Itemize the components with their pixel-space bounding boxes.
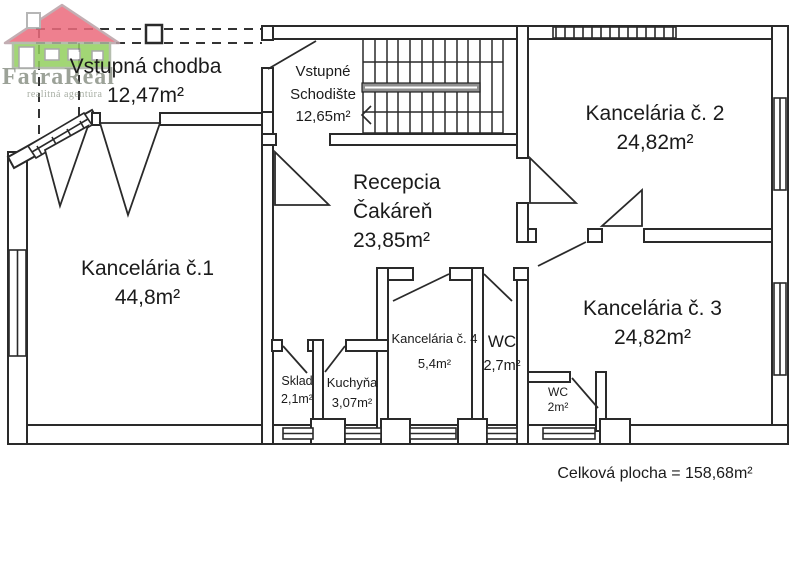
room-label-kancelaria-3: Kancelária č. 3 24,82m²: [540, 295, 765, 353]
room-label-vstupne-schodiste: Vstupné Schodište 12,65m²: [278, 61, 368, 129]
room-name: Kancelária č.1: [40, 255, 255, 284]
kancelaria2-south-door-swing: [602, 190, 642, 226]
room-name: WC: [478, 330, 526, 353]
room-label-kuchyna: Kuchyňa 3,07m²: [323, 373, 381, 413]
room-label-wc-upper: WC 2,7m²: [478, 330, 526, 376]
room-name: Kancelária č. 2: [540, 100, 770, 129]
room-area: 12,47m²: [28, 82, 263, 111]
room-label-wc-lower: WC 2m²: [540, 385, 576, 415]
kuchyna-door-leaf: [325, 346, 345, 372]
total-area-label: Celková plocha = 158,68m²: [540, 465, 770, 483]
room-name: Vstupná chodba: [28, 53, 263, 82]
room-area: 24,82m²: [540, 324, 765, 353]
room-label-kancelaria-4: Kancelária č. 4 5,4m²: [387, 330, 482, 373]
kancelaria3-door-leaf: [538, 242, 586, 266]
room-label-vstupna-chodba: Vstupná chodba 12,47m²: [28, 53, 263, 111]
kancelaria2-west-door-swing: [530, 158, 576, 203]
recepcia-door-swing: [275, 152, 329, 205]
corridor-entry-door-symbol: [146, 25, 162, 43]
room-area: 44,8m²: [40, 284, 255, 313]
room-name: Schodište: [278, 84, 368, 107]
room-name: Recepcia: [353, 169, 523, 198]
room-label-recepcia-cakaren: Recepcia Čakáreň 23,85m²: [353, 169, 523, 256]
room-label-kancelaria-1: Kancelária č.1 44,8m²: [40, 255, 255, 313]
room-name: Kancelária č. 3: [540, 295, 765, 324]
room-name: Sklad: [274, 373, 320, 391]
logo-chimney: [27, 13, 40, 28]
room-label-sklad: Sklad 2,1m²: [274, 373, 320, 408]
room-name: WC: [540, 385, 576, 400]
room-area: 2,7m²: [478, 356, 526, 376]
room-area: 2,1m²: [274, 391, 320, 409]
wc-horny-door-leaf: [484, 274, 512, 301]
kancelaria1-door-swing: [100, 123, 160, 215]
room-name: Vstupné: [278, 61, 368, 84]
room-name: Čakáreň: [353, 198, 523, 227]
room-area: 3,07m²: [323, 393, 381, 413]
room-area: 24,82m²: [540, 129, 770, 158]
staircase-symbol: [362, 39, 503, 133]
room-area: 2m²: [540, 400, 576, 415]
room-area: 5,4m²: [387, 355, 482, 373]
sklad-door-leaf: [283, 346, 307, 373]
room-name: Kuchyňa: [323, 373, 381, 393]
room-area: 12,65m²: [278, 106, 368, 129]
floorplan-page: FatraReal realitná agentúra Vstupná chod…: [0, 0, 800, 566]
room-area: 23,85m²: [353, 227, 523, 256]
room-label-kancelaria-2: Kancelária č. 2 24,82m²: [540, 100, 770, 158]
room-name: Kancelária č. 4: [387, 330, 482, 348]
